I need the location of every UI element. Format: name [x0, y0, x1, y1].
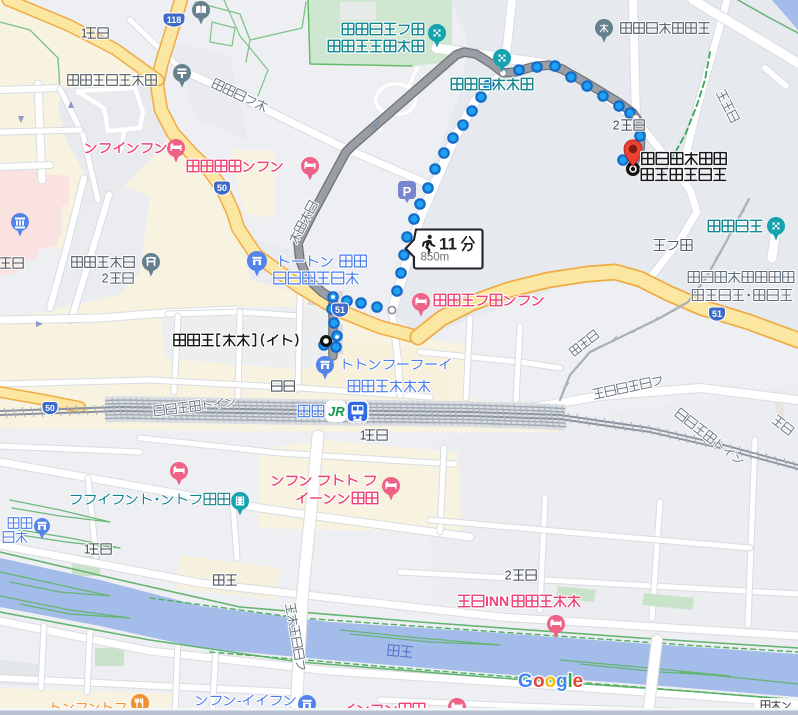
svg-text:1: 1: [84, 543, 91, 557]
svg-text:-: -: [237, 692, 242, 708]
svg-text:1: 1: [360, 429, 367, 443]
svg-text:51: 51: [335, 305, 345, 315]
svg-text:50: 50: [45, 403, 55, 413]
svg-text:JR: JR: [328, 404, 345, 419]
svg-text:1: 1: [81, 27, 88, 41]
svg-text:50: 50: [217, 183, 227, 193]
svg-text:g: g: [556, 671, 568, 692]
svg-text:118: 118: [167, 15, 182, 25]
svg-text:G: G: [518, 671, 533, 692]
svg-text:2: 2: [102, 272, 109, 286]
svg-text:2: 2: [613, 119, 620, 133]
svg-text:o: o: [545, 671, 557, 692]
svg-text:e: e: [573, 671, 584, 692]
svg-text:INN: INN: [485, 593, 509, 609]
svg-text:850m: 850m: [421, 252, 450, 264]
svg-text:P: P: [403, 184, 412, 199]
svg-text:2: 2: [505, 569, 512, 583]
svg-text:o: o: [533, 671, 545, 692]
svg-text:51: 51: [712, 309, 722, 319]
